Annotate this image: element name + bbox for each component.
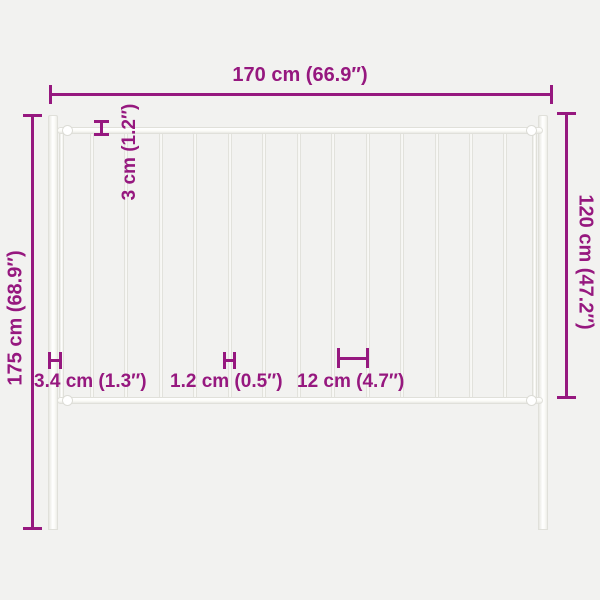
total-width-label: 170 cm (66.9″) — [232, 64, 367, 87]
panel-right-edge-tube — [532, 131, 537, 401]
fence-picket — [469, 131, 473, 401]
panel-height-tick-bottom — [557, 396, 576, 399]
picket-gap-tick-left — [337, 348, 340, 368]
fence-picket — [262, 131, 266, 401]
left-post — [48, 115, 58, 530]
total-width-tick-right — [550, 85, 553, 104]
picket-gap-bracket-line — [338, 357, 368, 360]
picket-width-tick-right — [233, 352, 236, 369]
panel-height-tick-top — [557, 112, 576, 115]
fence-picket — [400, 131, 404, 401]
picket-gap-label: 12 cm (4.7″) — [297, 371, 404, 393]
rail-connector-bottom-right — [526, 395, 537, 406]
picket-width-tick-left — [223, 352, 226, 369]
post-height-tick-bottom — [23, 527, 42, 530]
fence-picket — [297, 131, 301, 401]
post-width-label: 3.4 cm (1.3″) — [34, 371, 147, 393]
post-height-tick-top — [23, 114, 42, 117]
picket-gap-tick-right — [366, 348, 369, 368]
fence-picket — [159, 131, 163, 401]
panel-height-label: 120 cm (47.2″) — [574, 194, 597, 329]
right-post — [538, 115, 548, 530]
fence-picket — [435, 131, 439, 401]
post-width-tick-right — [59, 352, 62, 369]
post-height-dimension-line — [31, 115, 34, 529]
fence-picket — [503, 131, 507, 401]
fence-picket — [193, 131, 197, 401]
rail-thickness-tick-bottom — [94, 133, 109, 136]
bottom-rail — [57, 397, 543, 404]
rail-connector-top-left — [62, 125, 73, 136]
post-height-label: 175 cm (68.9″) — [5, 250, 28, 385]
rail-thickness-label: 3 cm (1.2″) — [119, 104, 141, 201]
fence-picket — [331, 131, 335, 401]
fence-picket — [90, 131, 94, 401]
total-width-dimension-line — [50, 93, 552, 96]
rail-connector-bottom-left — [62, 395, 73, 406]
rail-connector-top-right — [526, 125, 537, 136]
picket-width-label: 1.2 cm (0.5″) — [170, 371, 283, 393]
total-width-tick-left — [49, 85, 52, 104]
rail-thickness-tick-top — [94, 120, 109, 123]
post-width-tick-left — [48, 352, 51, 369]
fence-dimension-diagram: 170 cm (66.9″) 175 cm (68.9″) 120 cm (47… — [0, 0, 600, 600]
panel-height-dimension-line — [565, 113, 568, 399]
